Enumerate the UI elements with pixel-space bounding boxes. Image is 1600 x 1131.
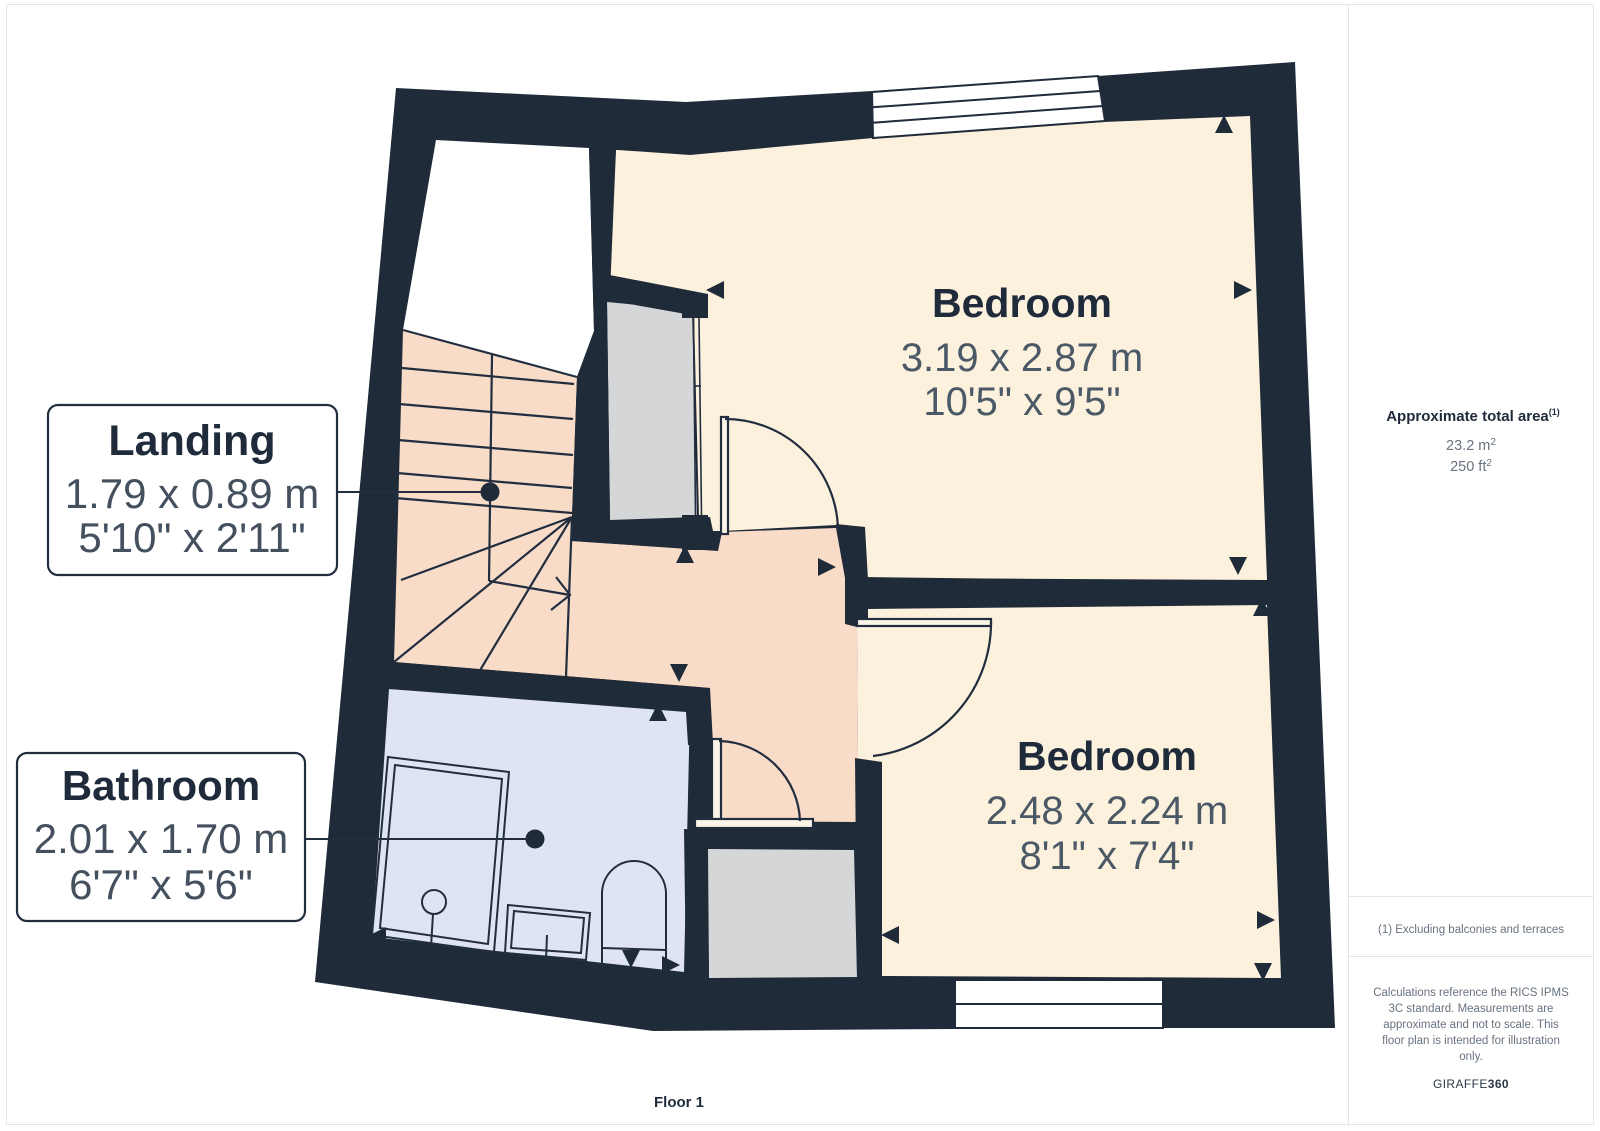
- svg-text:Calculations reference the RIC: Calculations reference the RICS IPMS: [1373, 987, 1569, 999]
- svg-text:(1) Excluding balconies and te: (1) Excluding balconies and terraces: [1378, 924, 1564, 936]
- svg-text:1.79 x 0.89 m: 1.79 x 0.89 m: [65, 470, 319, 517]
- svg-text:3.19 x 2.87 m: 3.19 x 2.87 m: [901, 336, 1143, 380]
- svg-text:GIRAFFE360: GIRAFFE360: [1433, 1077, 1509, 1091]
- svg-text:23.2 m2: 23.2 m2: [1446, 437, 1496, 454]
- svg-text:2.01 x 1.70 m: 2.01 x 1.70 m: [34, 815, 288, 862]
- svg-text:8'1" x 7'4": 8'1" x 7'4": [1020, 834, 1195, 878]
- svg-text:5'10" x 2'11": 5'10" x 2'11": [78, 514, 305, 561]
- svg-text:only.: only.: [1459, 1051, 1482, 1063]
- svg-text:6'7" x 5'6": 6'7" x 5'6": [69, 861, 253, 908]
- svg-text:250 ft2: 250 ft2: [1450, 458, 1492, 475]
- svg-text:Bedroom: Bedroom: [932, 280, 1112, 326]
- svg-text:2.48 x 2.24 m: 2.48 x 2.24 m: [986, 789, 1228, 833]
- svg-text:10'5" x 9'5": 10'5" x 9'5": [923, 380, 1120, 424]
- svg-text:Floor 1: Floor 1: [654, 1094, 704, 1111]
- svg-text:Bedroom: Bedroom: [1017, 733, 1197, 779]
- svg-text:3C standard. Measurements are: 3C standard. Measurements are: [1389, 1003, 1554, 1015]
- svg-text:Approximate total area(1): Approximate total area(1): [1386, 407, 1560, 425]
- svg-text:Landing: Landing: [108, 417, 275, 465]
- svg-text:floor plan is intended for ill: floor plan is intended for illustration: [1382, 1035, 1560, 1047]
- svg-text:approximate and not to scale.: approximate and not to scale. This: [1383, 1019, 1559, 1031]
- svg-text:Bathroom: Bathroom: [62, 762, 260, 809]
